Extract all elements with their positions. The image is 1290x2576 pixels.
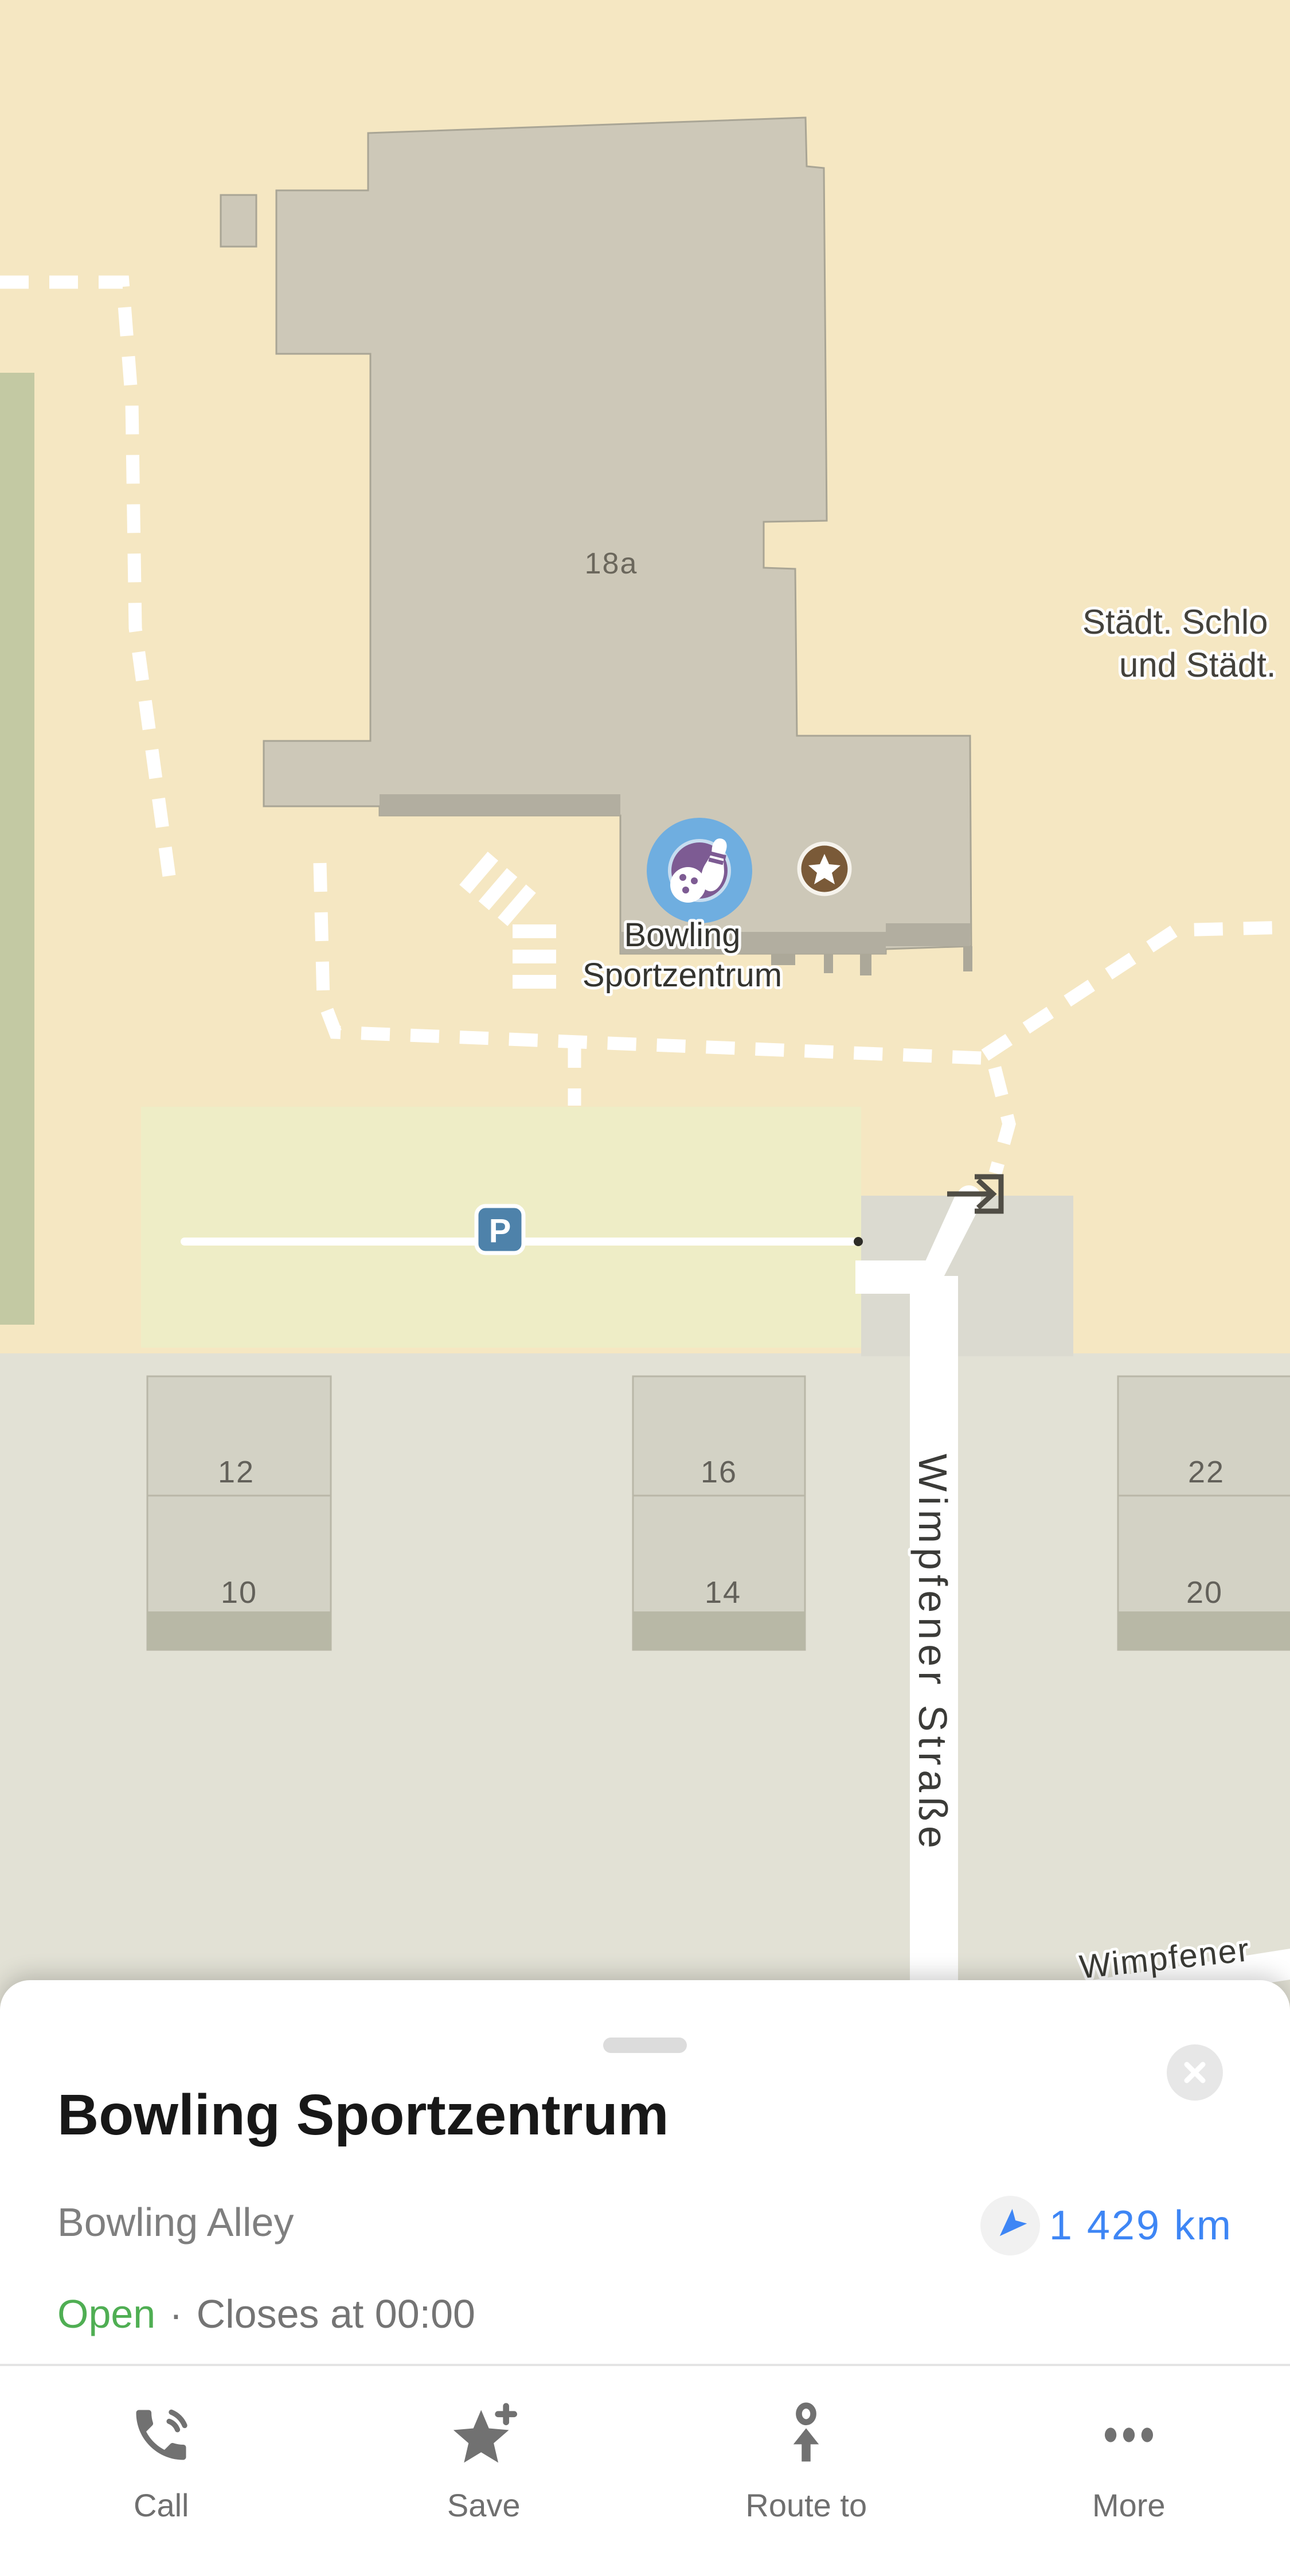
district-label-line1: Städt. Schlo: [1082, 603, 1268, 641]
drag-handle[interactable]: [603, 2038, 687, 2053]
house-number-16: 16: [701, 1455, 737, 1489]
house-number-14: 14: [705, 1575, 741, 1610]
place-title: Bowling Sportzentrum: [57, 2082, 669, 2148]
open-status: Open: [57, 2292, 155, 2336]
ellipsis-icon: [1094, 2401, 1163, 2469]
phone-icon: [127, 2401, 196, 2469]
place-category: Bowling Alley: [57, 2200, 294, 2245]
building-detail: [824, 954, 833, 973]
district-label-line2: und Städt.: [1119, 646, 1276, 684]
street-label-wimpfener-strasse: Wimpfener Straße: [910, 1454, 955, 1853]
svg-text:P: P: [489, 1212, 511, 1250]
house-number-22: 22: [1188, 1455, 1225, 1489]
star-plus-icon: [449, 2401, 518, 2469]
building-shadow: [380, 794, 620, 815]
parking-p-icon[interactable]: P: [476, 1206, 523, 1253]
save-label: Save: [447, 2487, 521, 2524]
house-number-12: 12: [218, 1455, 255, 1489]
house-number-10: 10: [221, 1575, 257, 1610]
navigation-arrow-icon: [980, 2196, 1040, 2255]
route-to-button[interactable]: Route to: [645, 2384, 968, 2568]
distance-value: 1 429 km: [1049, 2202, 1233, 2249]
poi-label-line2: Sportzentrum: [583, 957, 782, 994]
house-number-20: 20: [1186, 1575, 1223, 1610]
opening-hours: Open·Closes at 00:00: [57, 2291, 475, 2337]
call-label: Call: [134, 2487, 189, 2524]
map-canvas[interactable]: Wimpfener Straße Wimpfener 18a Städt. Sc…: [0, 0, 1290, 2042]
save-button[interactable]: Save: [323, 2384, 646, 2568]
more-label: More: [1092, 2487, 1166, 2524]
close-button[interactable]: [1167, 2044, 1223, 2101]
bowling-poi-marker[interactable]: [647, 818, 752, 923]
route-to-label: Route to: [745, 2487, 867, 2524]
actions-divider: [0, 2364, 1290, 2366]
place-card: Bowling Sportzentrum Bowling Alley 1 429…: [0, 1980, 1290, 2576]
more-button[interactable]: More: [968, 2384, 1290, 2568]
building-number-label: 18a: [585, 547, 638, 580]
green-area: [0, 373, 34, 1325]
building-detail: [860, 954, 871, 975]
poi-label-line1: Bowling: [624, 916, 740, 954]
building-detail: [963, 946, 972, 971]
parking-aisle-dot: [854, 1237, 863, 1246]
star-poi-marker[interactable]: [799, 844, 850, 894]
closes-text: Closes at 00:00: [197, 2292, 475, 2336]
small-building: [221, 195, 256, 247]
call-button[interactable]: Call: [0, 2384, 323, 2568]
building-shadow: [886, 923, 970, 946]
route-arrow-icon: [772, 2401, 841, 2469]
distance-info: 1 429 km: [980, 2196, 1233, 2255]
status-separator: ·: [169, 2292, 182, 2336]
close-icon: [1182, 2060, 1207, 2085]
action-bar: Call Save: [0, 2384, 1290, 2568]
maps-app-screen: Wimpfener Straße Wimpfener 18a Städt. Sc…: [0, 0, 1290, 2576]
